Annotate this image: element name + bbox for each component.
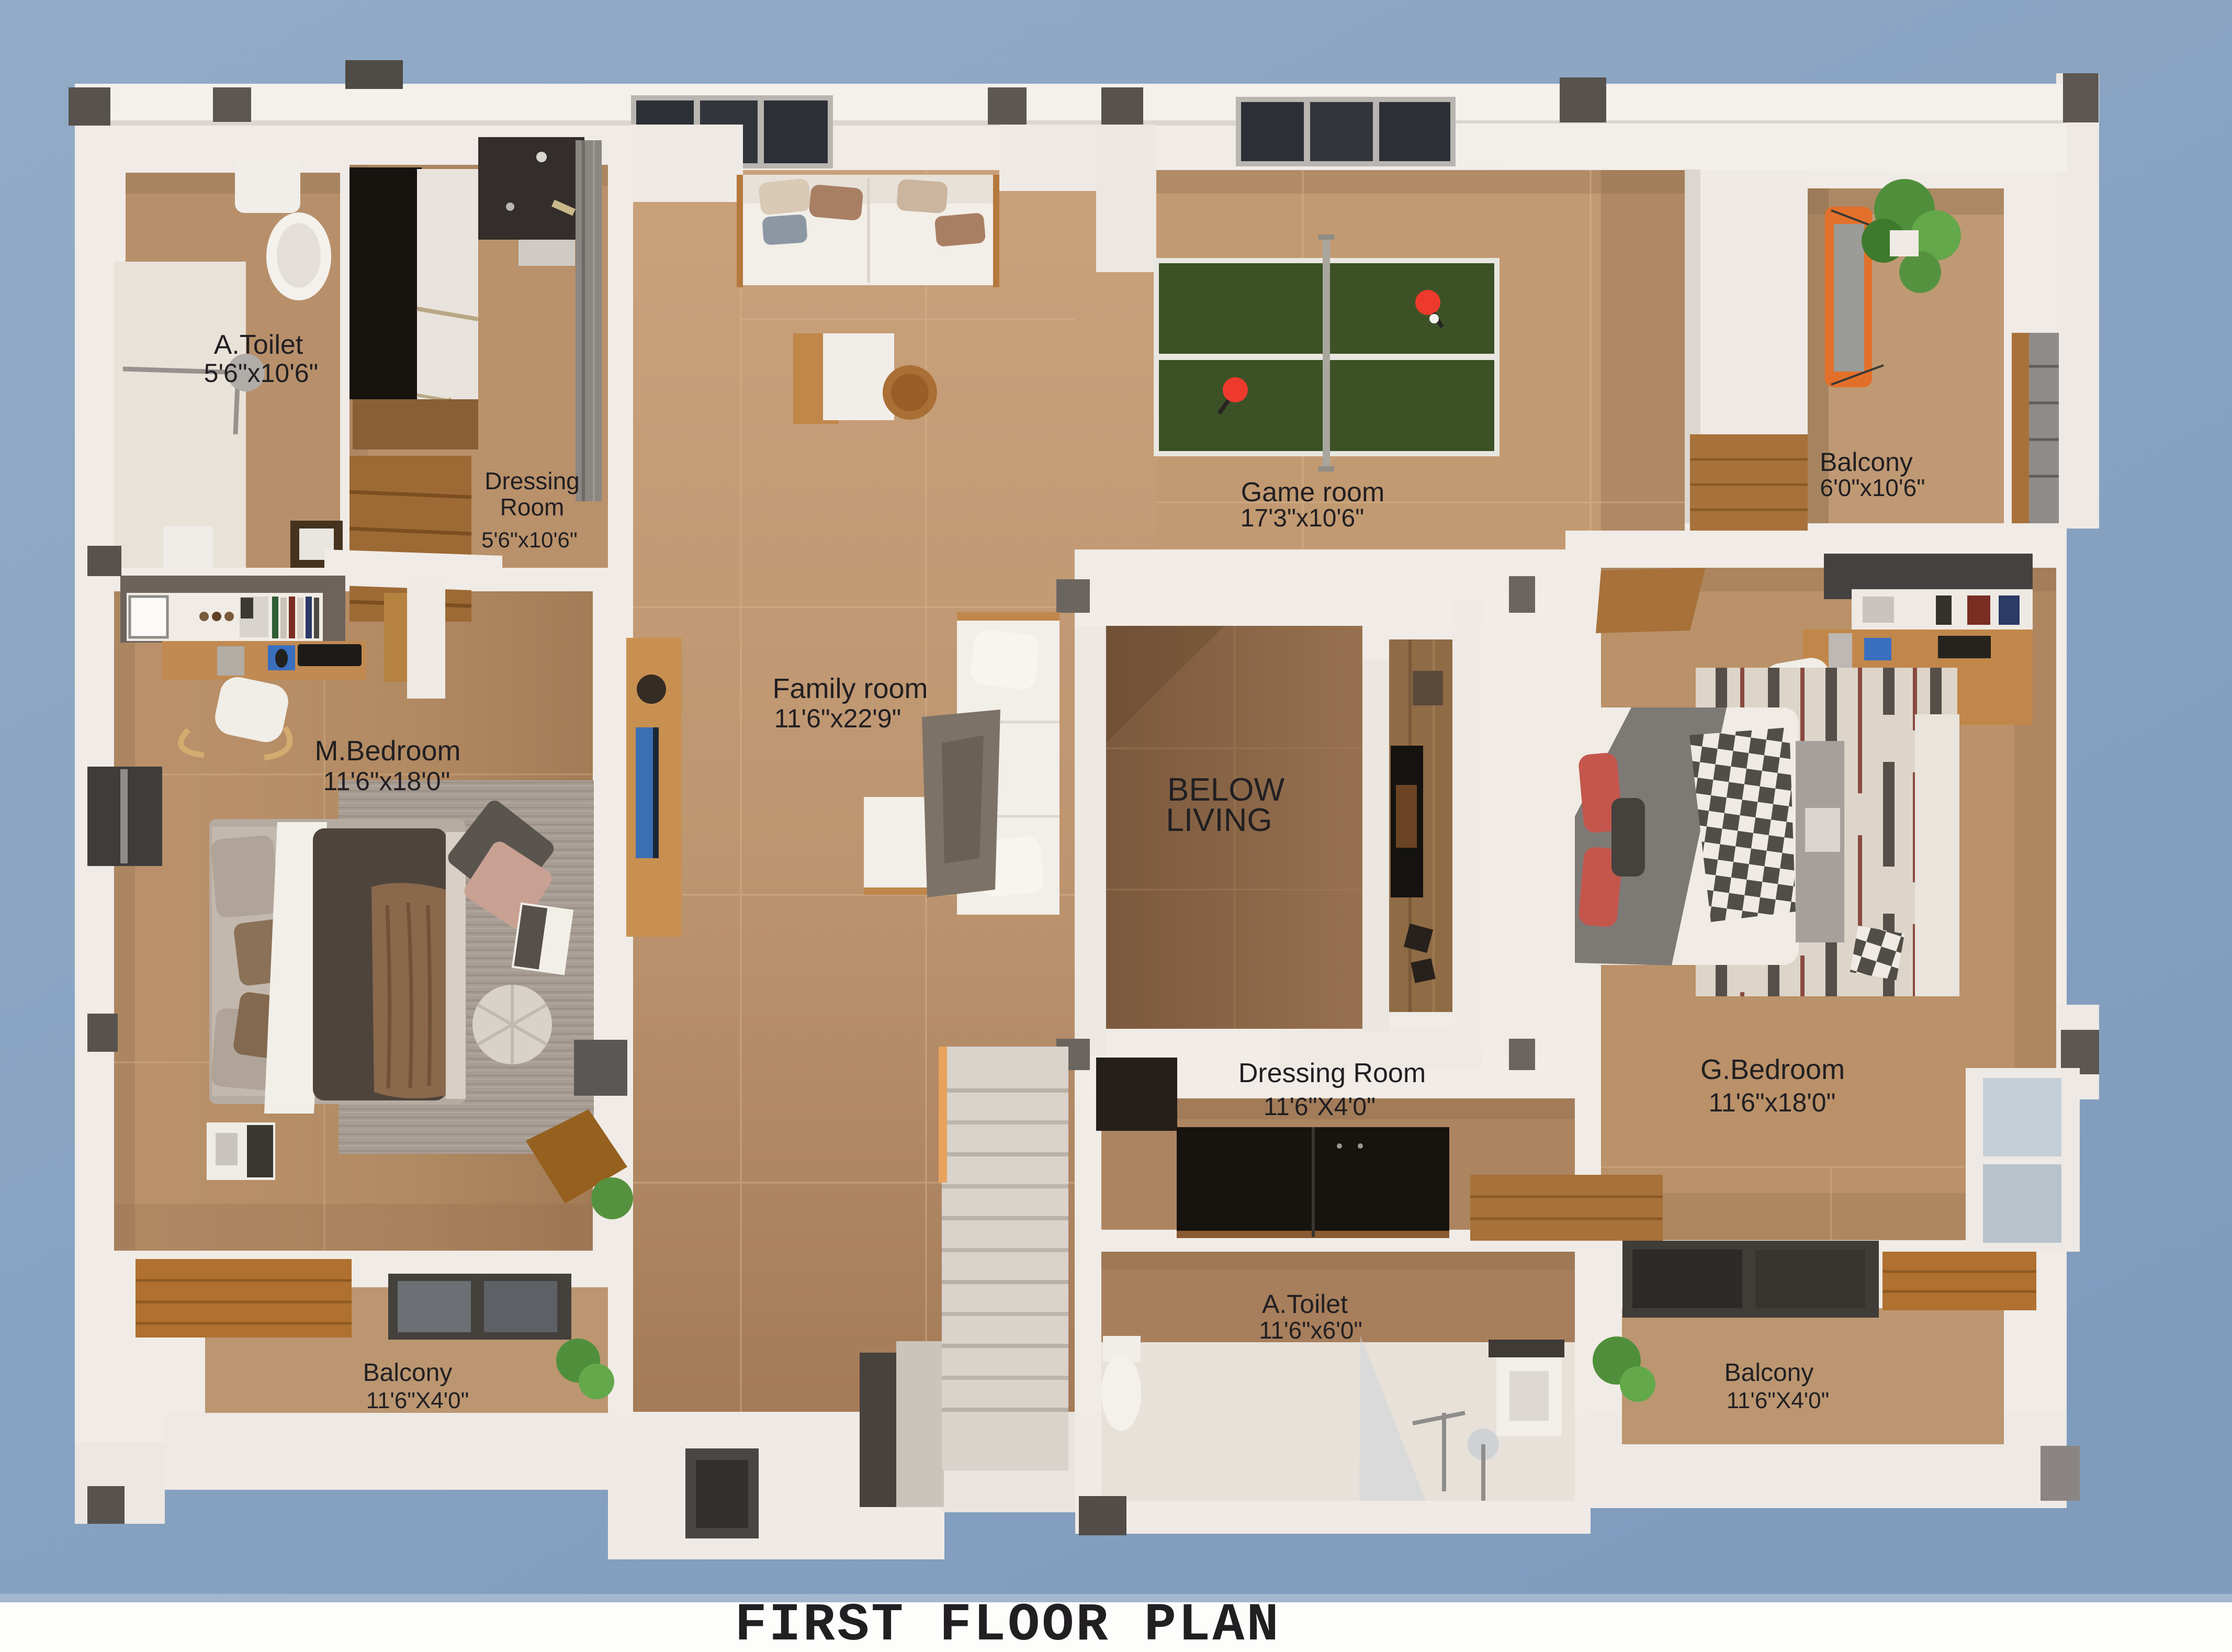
- svg-text:Room: Room: [500, 493, 565, 521]
- svg-text:5'6"x10'6": 5'6"x10'6": [481, 527, 578, 552]
- svg-text:Family room: Family room: [772, 673, 928, 704]
- svg-text:G.Bedroom: G.Bedroom: [1700, 1054, 1845, 1085]
- svg-text:11'6"X4'0": 11'6"X4'0": [1727, 1388, 1829, 1413]
- svg-text:11'6"x22'9": 11'6"x22'9": [774, 704, 901, 733]
- svg-text:Dressing: Dressing: [484, 467, 580, 495]
- svg-text:Dressing Room: Dressing Room: [1238, 1058, 1426, 1088]
- svg-text:11'6"X4'0": 11'6"X4'0": [366, 1388, 469, 1413]
- svg-text:11'6"x18'0": 11'6"x18'0": [1709, 1088, 1836, 1117]
- svg-text:M.Bedroom: M.Bedroom: [314, 735, 460, 767]
- svg-text:LIVING: LIVING: [1166, 802, 1272, 838]
- svg-text:A.Toilet: A.Toilet: [1262, 1289, 1348, 1319]
- svg-text:6'0"x10'6": 6'0"x10'6": [1820, 474, 1925, 501]
- svg-text:Balcony: Balcony: [1820, 447, 1913, 477]
- svg-text:5'6"x10'6": 5'6"x10'6": [204, 358, 319, 388]
- svg-text:11'6"x18'0": 11'6"x18'0": [323, 767, 450, 796]
- svg-text:11'6"X4'0": 11'6"X4'0": [1264, 1093, 1376, 1121]
- svg-text:Balcony: Balcony: [1724, 1359, 1814, 1387]
- svg-text:Game room: Game room: [1241, 477, 1385, 508]
- svg-text:FIRST FLOOR PLAN: FIRST FLOOR PLAN: [735, 1595, 1280, 1652]
- svg-text:11'6"x6'0": 11'6"x6'0": [1259, 1317, 1362, 1344]
- svg-text:Balcony: Balcony: [363, 1359, 453, 1387]
- svg-text:A.Toilet: A.Toilet: [214, 330, 303, 360]
- svg-text:17'3"x10'6": 17'3"x10'6": [1241, 504, 1365, 532]
